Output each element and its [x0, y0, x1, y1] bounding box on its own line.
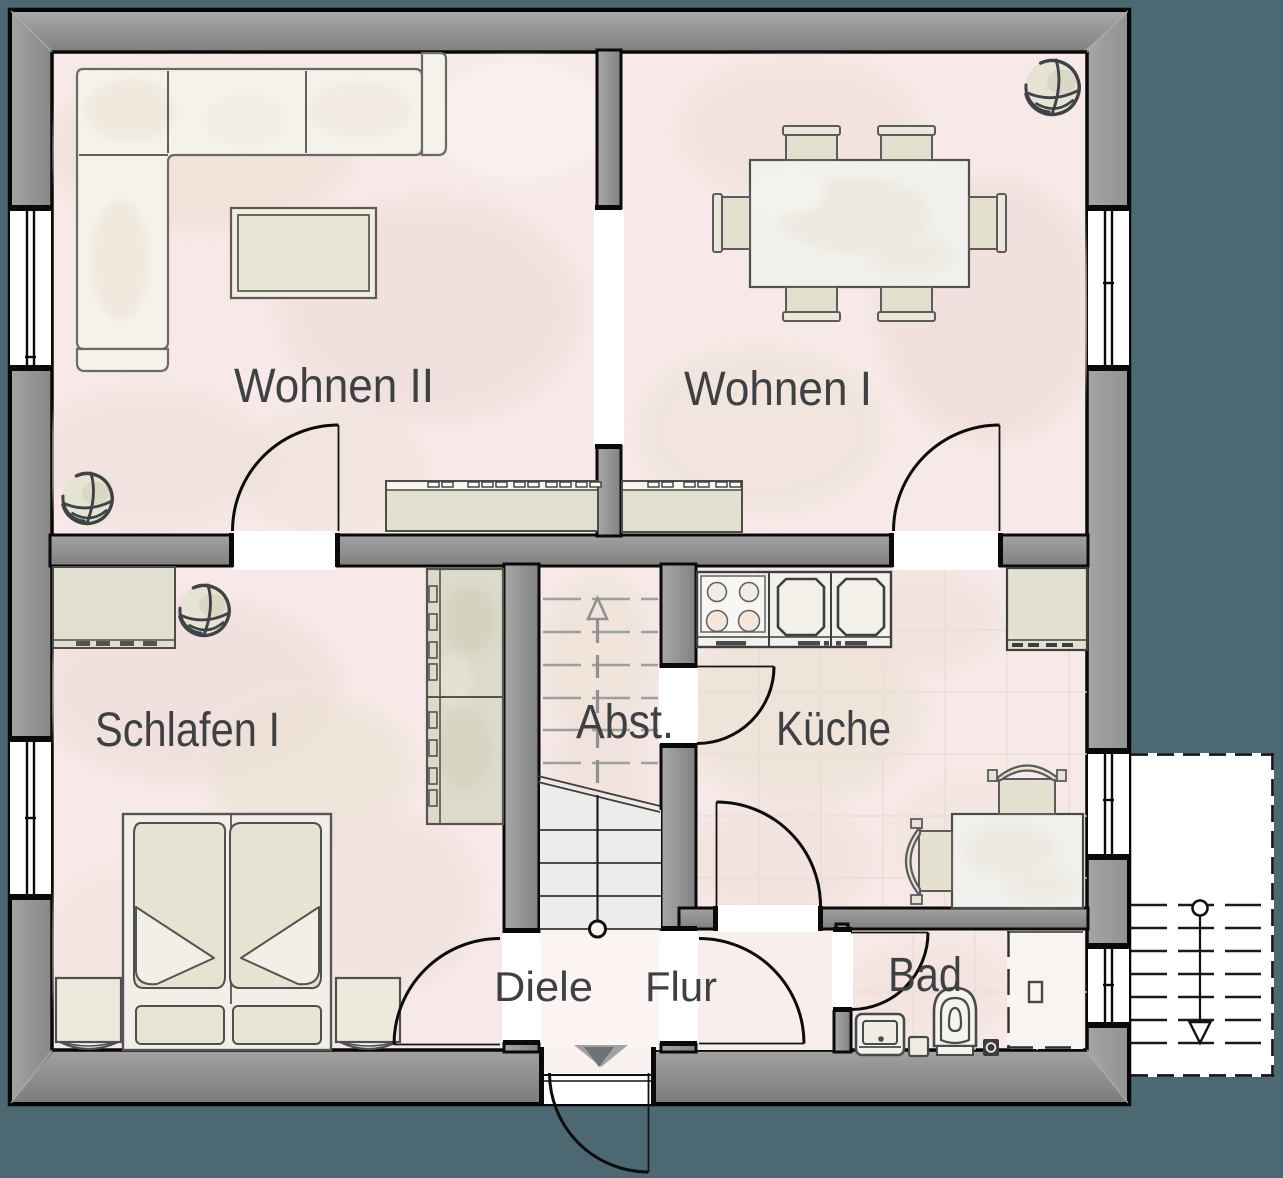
svg-text:Abst.: Abst.	[576, 696, 674, 749]
svg-text:Flur: Flur	[645, 963, 717, 1010]
svg-text:Bad: Bad	[888, 949, 962, 1002]
svg-text:Wohnen II: Wohnen II	[234, 360, 434, 413]
svg-text:Schlafen I: Schlafen I	[95, 704, 280, 757]
svg-text:Küche: Küche	[776, 703, 891, 756]
svg-text:Wohnen I: Wohnen I	[684, 363, 872, 416]
svg-text:Diele: Diele	[494, 963, 593, 1010]
